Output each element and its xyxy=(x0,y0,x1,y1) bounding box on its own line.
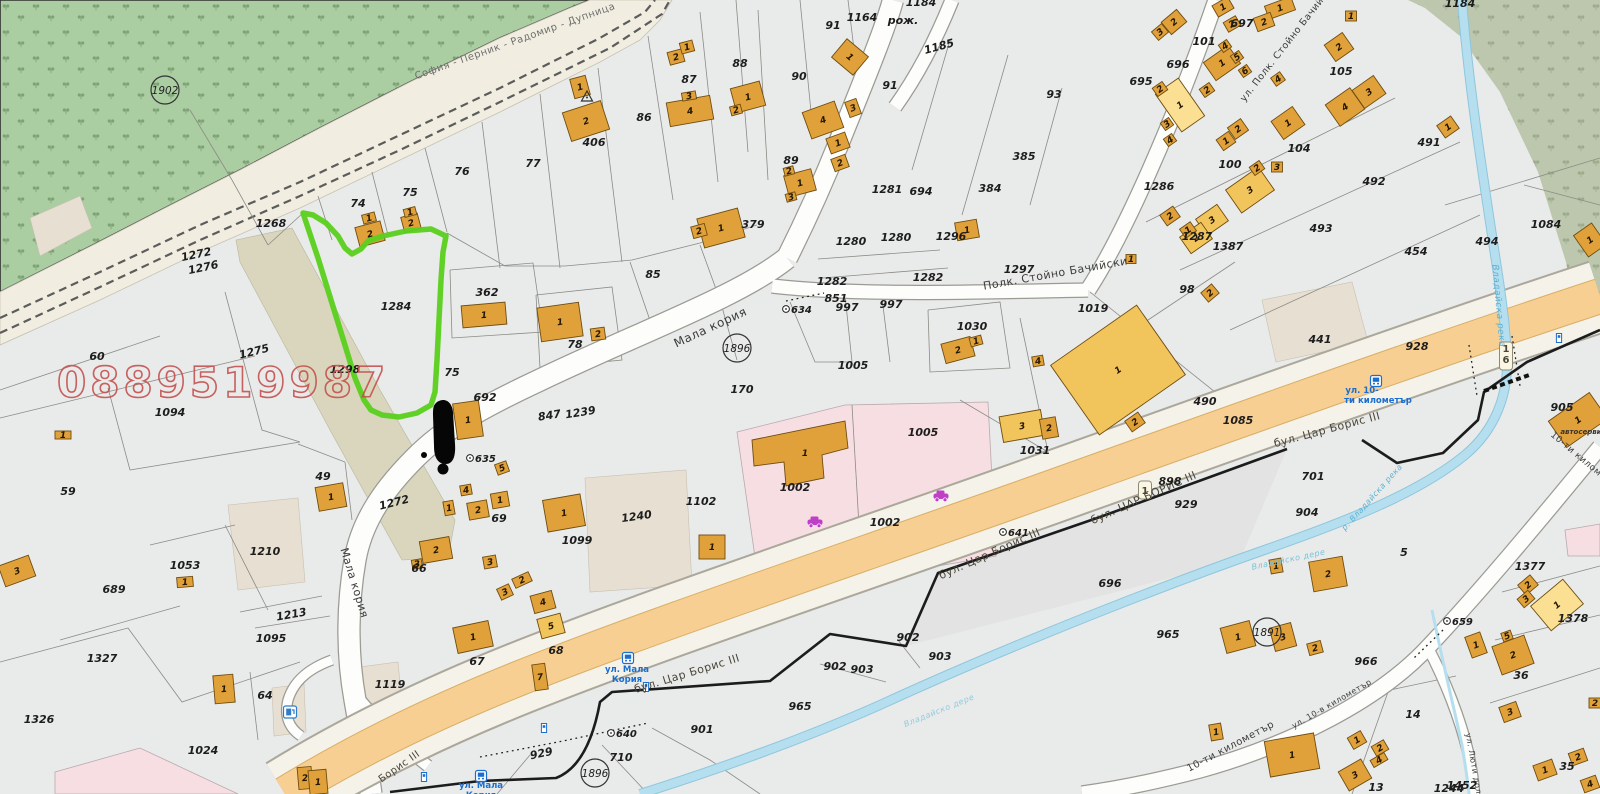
parcel-label[interactable]: 67 xyxy=(469,655,485,668)
parcel-label[interactable]: 1099 xyxy=(562,534,593,547)
parcel-label[interactable]: 692 xyxy=(474,391,497,404)
geodetic-marker xyxy=(467,455,474,462)
parcel-label[interactable]: 1184 xyxy=(1445,0,1476,10)
parcel-label[interactable]: 1002 xyxy=(780,481,811,494)
parcel-label[interactable]: 100 xyxy=(1219,158,1242,171)
parcel-label[interactable]: 74 xyxy=(350,197,365,210)
parcel-label[interactable]: 78 xyxy=(567,338,583,351)
parcel-label[interactable]: 75 xyxy=(444,366,460,379)
parcel-label[interactable]: 89 xyxy=(783,154,799,167)
region-circle-number: 1902 xyxy=(152,85,179,97)
parcel-label[interactable]: 384 xyxy=(979,182,1002,195)
parcel-label[interactable]: 93 xyxy=(1046,88,1062,101)
geodetic-marker xyxy=(783,306,790,313)
parcel-label[interactable]: 695 xyxy=(1130,75,1153,88)
parcel-label[interactable]: 91 xyxy=(882,79,897,92)
parcel-label[interactable]: 697 xyxy=(1231,17,1254,30)
building[interactable]: 3 xyxy=(483,555,498,569)
geodetic-marker-dot xyxy=(610,732,612,734)
geodetic-marker-number: 659 xyxy=(1452,617,1473,628)
building[interactable]: 1 xyxy=(443,500,455,516)
parcel-label[interactable]: 1053 xyxy=(170,559,201,572)
building[interactable]: 2 xyxy=(467,500,490,520)
geodetic-marker-dot xyxy=(469,457,471,459)
parcel-label[interactable]: 98 xyxy=(1179,283,1195,296)
parcel-label[interactable]: 1296 xyxy=(936,230,967,243)
poi-label: ул. Мала xyxy=(605,665,649,675)
building-number: 3 xyxy=(1274,163,1280,173)
geodetic-marker xyxy=(608,730,615,737)
region-circle-number: 1896 xyxy=(724,343,751,355)
parcel-label[interactable]: 87 xyxy=(681,73,697,86)
building[interactable]: 1 xyxy=(543,494,586,532)
route-shield-number: 16 xyxy=(1503,344,1510,366)
parcel-label[interactable]: 903 xyxy=(929,650,952,663)
parcel-label[interactable]: 1327 xyxy=(87,652,118,665)
parcel-label[interactable]: 35 xyxy=(1559,760,1575,773)
pink-parcel xyxy=(1565,524,1600,556)
parcel-label[interactable]: 105 xyxy=(1330,65,1353,78)
parcel-label[interactable]: 59 xyxy=(60,485,76,498)
stop-icon[interactable] xyxy=(1556,334,1561,343)
redaction-blob-shape xyxy=(421,452,427,458)
stop-icon[interactable] xyxy=(541,724,546,733)
parcel-label[interactable]: 903 xyxy=(851,663,874,676)
parcel-label[interactable]: 997 xyxy=(880,298,903,311)
parcel-label[interactable]: 965 xyxy=(1157,628,1180,641)
bus-icon[interactable] xyxy=(476,771,487,782)
parcel-label[interactable]: 1326 xyxy=(24,713,55,726)
parcel-label[interactable]: 5 xyxy=(1400,546,1408,559)
parcel-label[interactable]: 904 xyxy=(1296,506,1319,519)
parcel-label[interactable]: 1282 xyxy=(817,275,848,288)
parcel-label[interactable]: 88 xyxy=(732,57,748,70)
parcel-label[interactable]: 1119 xyxy=(375,678,406,691)
geodetic-marker-number: 634 xyxy=(791,305,812,316)
building[interactable]: 3 xyxy=(1272,162,1283,173)
parcel-label[interactable]: 696 xyxy=(1099,577,1122,590)
parcel-label[interactable]: 1297 xyxy=(1004,263,1035,276)
building-number: 1 xyxy=(1348,12,1354,22)
parcel-label[interactable]: 64 xyxy=(257,689,272,702)
region-circle-number: 1891 xyxy=(1254,627,1281,639)
parcel-label[interactable]: 494 xyxy=(1475,235,1499,248)
building[interactable]: 1 xyxy=(490,491,509,509)
parcel-label[interactable]: 104 xyxy=(1288,142,1311,155)
redaction-blob-shape xyxy=(438,464,449,475)
parcel-label[interactable]: 406 xyxy=(582,136,606,149)
building[interactable]: 2 xyxy=(1039,417,1058,439)
poi-label: ул. Мала xyxy=(459,781,503,791)
geodetic-marker xyxy=(1444,618,1451,625)
parcel-label[interactable]: 1005 xyxy=(838,359,869,372)
parcel-label[interactable]: 1024 xyxy=(188,744,219,757)
building[interactable]: 1 xyxy=(177,576,194,588)
parcel-label[interactable]: 1280 xyxy=(836,235,867,248)
building-number: 1 xyxy=(1128,255,1134,265)
building-number: 1 xyxy=(709,543,715,553)
parcel-label[interactable]: 1084 xyxy=(1531,218,1562,231)
parcel-label[interactable]: 902 xyxy=(897,631,920,644)
parcel-label[interactable]: 701 xyxy=(1302,470,1325,483)
geodetic-marker-dot xyxy=(1446,620,1448,622)
parcel-label[interactable]: 1102 xyxy=(686,495,717,508)
parcel-label[interactable]: 85 xyxy=(645,268,661,281)
building[interactable]: 1 xyxy=(1346,11,1357,22)
geodetic-marker-number: 640 xyxy=(616,729,637,740)
parcel-label[interactable]: 1287 xyxy=(1182,230,1213,243)
geodetic-marker xyxy=(1000,529,1007,536)
parcel-label[interactable]: 694 xyxy=(910,185,933,198)
cadastral-map[interactable]: 2121214321124123123112231212124312342156… xyxy=(0,0,1600,794)
poi-label: ул. 10- xyxy=(1345,386,1379,396)
poi-label: Кория xyxy=(612,675,642,685)
building[interactable]: 1 xyxy=(699,535,725,559)
parcel-label[interactable]: 1281 xyxy=(872,183,903,196)
parcel-label[interactable]: 929 xyxy=(1175,498,1198,511)
parcel-label[interactable]: 928 xyxy=(1406,340,1429,353)
map-canvas[interactable]: 2121214321124123123112231212124312342156… xyxy=(0,0,1600,794)
parcel-label[interactable]: 1019 xyxy=(1078,302,1109,315)
building-number: 1 xyxy=(481,311,488,322)
parcel-label[interactable]: 1002 xyxy=(870,516,901,529)
parcel-label[interactable]: 69 xyxy=(491,512,507,525)
geodetic-marker-dot xyxy=(1002,531,1004,533)
building-number: 1 xyxy=(60,431,66,441)
parcel-label[interactable]: 689 xyxy=(103,583,126,596)
parcel-label[interactable]: 490 xyxy=(1193,395,1217,408)
parcel-label[interactable]: 1268 xyxy=(256,217,287,230)
building-number: 2 xyxy=(302,774,309,785)
parcel-label[interactable]: 13 xyxy=(1368,781,1384,794)
geodetic-marker-number: 635 xyxy=(475,454,496,465)
parcel-label[interactable]: 905 xyxy=(1551,401,1574,414)
parcel-label[interactable]: 14 xyxy=(1405,708,1420,721)
parcel-label[interactable]: 101 xyxy=(1193,35,1216,48)
parcel-label[interactable]: 1210 xyxy=(250,545,281,558)
parcel-label[interactable]: 1031 xyxy=(1020,444,1051,457)
poi-label: автосервиз xyxy=(1560,428,1600,436)
parcel-label[interactable]: 710 xyxy=(610,751,633,764)
parcel-label[interactable]: 385 xyxy=(1013,150,1036,163)
parcel-label[interactable]: 1378 xyxy=(1558,612,1589,625)
parcel-label[interactable]: 75 xyxy=(402,186,418,199)
parcel-label[interactable]: 1284 xyxy=(381,300,412,313)
stop-icon[interactable] xyxy=(421,773,426,782)
parcel-label[interactable]: 86 xyxy=(636,111,652,124)
building-number: 1 xyxy=(182,578,189,589)
parcel-label[interactable]: 1282 xyxy=(913,271,944,284)
parcel-label[interactable]: 902 xyxy=(824,660,847,673)
building[interactable]: 1 xyxy=(537,302,583,342)
parcel-label[interactable]: 492 xyxy=(1362,175,1386,188)
parcel-label[interactable]: 66 xyxy=(411,562,427,575)
parcel-label[interactable]: рож. xyxy=(887,14,919,27)
parcel-label[interactable]: 1005 xyxy=(908,426,939,439)
tan-parcel xyxy=(228,498,305,590)
parcel-label[interactable]: 997 xyxy=(836,301,859,314)
parcel-label[interactable]: 362 xyxy=(476,286,499,299)
building[interactable]: 1 xyxy=(1209,723,1224,741)
building[interactable]: 2 xyxy=(1589,698,1600,709)
building[interactable]: 1 xyxy=(308,769,328,794)
parcel-label[interactable]: 441 xyxy=(1308,333,1332,346)
building[interactable]: 2 xyxy=(1309,556,1348,591)
redaction-blob-shape xyxy=(433,400,455,464)
building-number: 1 xyxy=(315,778,322,789)
parcel-label[interactable]: 696 xyxy=(1167,58,1190,71)
building[interactable]: 1 xyxy=(213,674,235,704)
watermark-phone: 0889519987 xyxy=(57,358,389,407)
parcel-label[interactable]: 77 xyxy=(525,157,541,170)
parcel-label[interactable]: 170 xyxy=(731,383,754,396)
parcel-label[interactable]: 493 xyxy=(1309,222,1333,235)
building[interactable]: 1 xyxy=(453,400,484,439)
bus-icon[interactable] xyxy=(623,653,634,664)
building[interactable]: 2 xyxy=(590,327,606,341)
parcel-label[interactable]: 1085 xyxy=(1223,414,1254,427)
parcel-label[interactable]: 1286 xyxy=(1144,180,1175,193)
parcel-label[interactable]: 898 xyxy=(1159,475,1182,488)
building[interactable]: 2 xyxy=(419,537,452,564)
parcel-label[interactable]: 1164 xyxy=(847,11,878,24)
geodetic-marker-dot xyxy=(785,308,787,310)
parcel-label[interactable]: 491 xyxy=(1417,136,1441,149)
parcel-label[interactable]: 90 xyxy=(791,70,807,83)
building-number: 1 xyxy=(802,449,808,459)
poi-label: ти километър xyxy=(1344,396,1412,406)
parcel-label[interactable]: 379 xyxy=(742,218,765,231)
parcel-label[interactable]: 454 xyxy=(1404,245,1428,258)
parcel-label[interactable]: 1387 xyxy=(1213,240,1244,253)
building-number: 1 xyxy=(221,685,228,696)
fuel-icon[interactable] xyxy=(284,706,297,718)
bus-icon[interactable] xyxy=(1371,376,1382,387)
parcel-label[interactable]: 966 xyxy=(1355,655,1378,668)
region-circle-number: 1896 xyxy=(582,768,609,780)
parcel-label[interactable]: 965 xyxy=(789,700,812,713)
parcel-label[interactable]: 49 xyxy=(314,470,331,483)
parcel-label[interactable]: 36 xyxy=(1513,669,1529,682)
tan-parcel xyxy=(585,470,692,592)
building-number: 2 xyxy=(1592,699,1598,709)
parcel-label[interactable]: 1377 xyxy=(1515,560,1546,573)
building[interactable]: 1 xyxy=(315,483,347,511)
parcel-label[interactable]: 1280 xyxy=(881,231,912,244)
parcel-label[interactable]: 1095 xyxy=(256,632,287,645)
parcel-label[interactable]: 68 xyxy=(548,644,564,657)
parcel-label[interactable]: 1452 xyxy=(1447,779,1478,792)
parcel-label[interactable]: 1030 xyxy=(957,320,988,333)
parcel-label[interactable]: 1094 xyxy=(155,406,186,419)
parcel-label[interactable]: 1184 xyxy=(906,0,937,9)
building[interactable]: 1 xyxy=(461,302,507,328)
parcel-label[interactable]: 901 xyxy=(691,723,714,736)
parcel-label[interactable]: 76 xyxy=(454,165,470,178)
parcel-label[interactable]: 91 xyxy=(825,19,840,32)
